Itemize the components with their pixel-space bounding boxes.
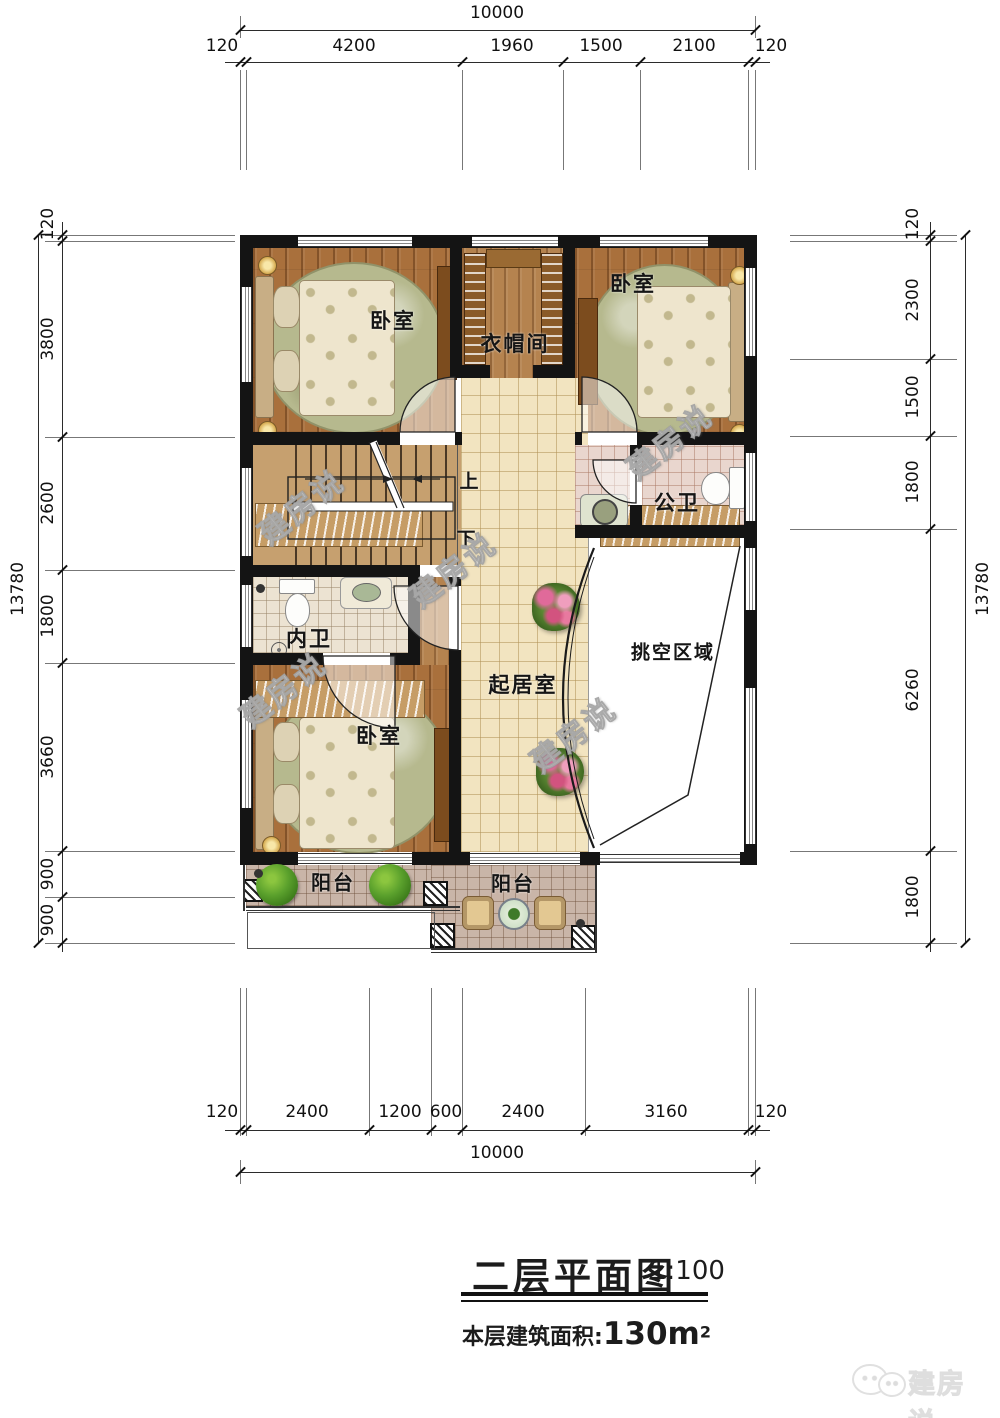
area-line: 本层建筑面积:130m2 xyxy=(462,1316,711,1352)
stair-break-line xyxy=(376,442,404,508)
room-label-cloakroom: 衣帽间 xyxy=(481,328,550,358)
door-arc xyxy=(400,377,455,432)
area-value: 130m xyxy=(603,1316,700,1352)
stairs-up-label: 上 xyxy=(459,467,480,494)
plan-linework xyxy=(0,0,1000,1418)
room-label-void: 挑空区域 xyxy=(631,638,715,665)
plan-scale: 1:100 xyxy=(650,1256,725,1286)
door-arc xyxy=(323,656,395,728)
room-label-public-bath: 公卫 xyxy=(654,487,700,517)
brand-logo-text: 建房说 xyxy=(908,1362,990,1418)
title-underline-2 xyxy=(461,1300,708,1302)
floor-plan-sheet: 10000 120 4200 1960 1500 2100 120 xyxy=(0,0,1000,1418)
room-label-living: 起居室 xyxy=(489,669,558,699)
stair-break-gap xyxy=(373,442,401,508)
void-diagonal xyxy=(600,546,740,845)
room-label-balcony-left: 阳台 xyxy=(311,867,355,896)
title-underline xyxy=(461,1292,708,1296)
door-arc xyxy=(582,377,637,432)
room-label-bedroom1: 卧室 xyxy=(370,305,416,335)
chat-bubble-icon-small xyxy=(878,1372,906,1397)
area-sup: 2 xyxy=(700,1323,711,1342)
room-label-bedroom2: 卧室 xyxy=(610,268,656,298)
room-label-bedroom3: 卧室 xyxy=(356,720,402,750)
area-label: 本层建筑面积: xyxy=(462,1325,603,1350)
stair-arrow-head xyxy=(412,475,422,483)
brand-logo: 建房说 xyxy=(840,1356,990,1404)
room-label-balcony-center: 阳台 xyxy=(491,868,535,897)
